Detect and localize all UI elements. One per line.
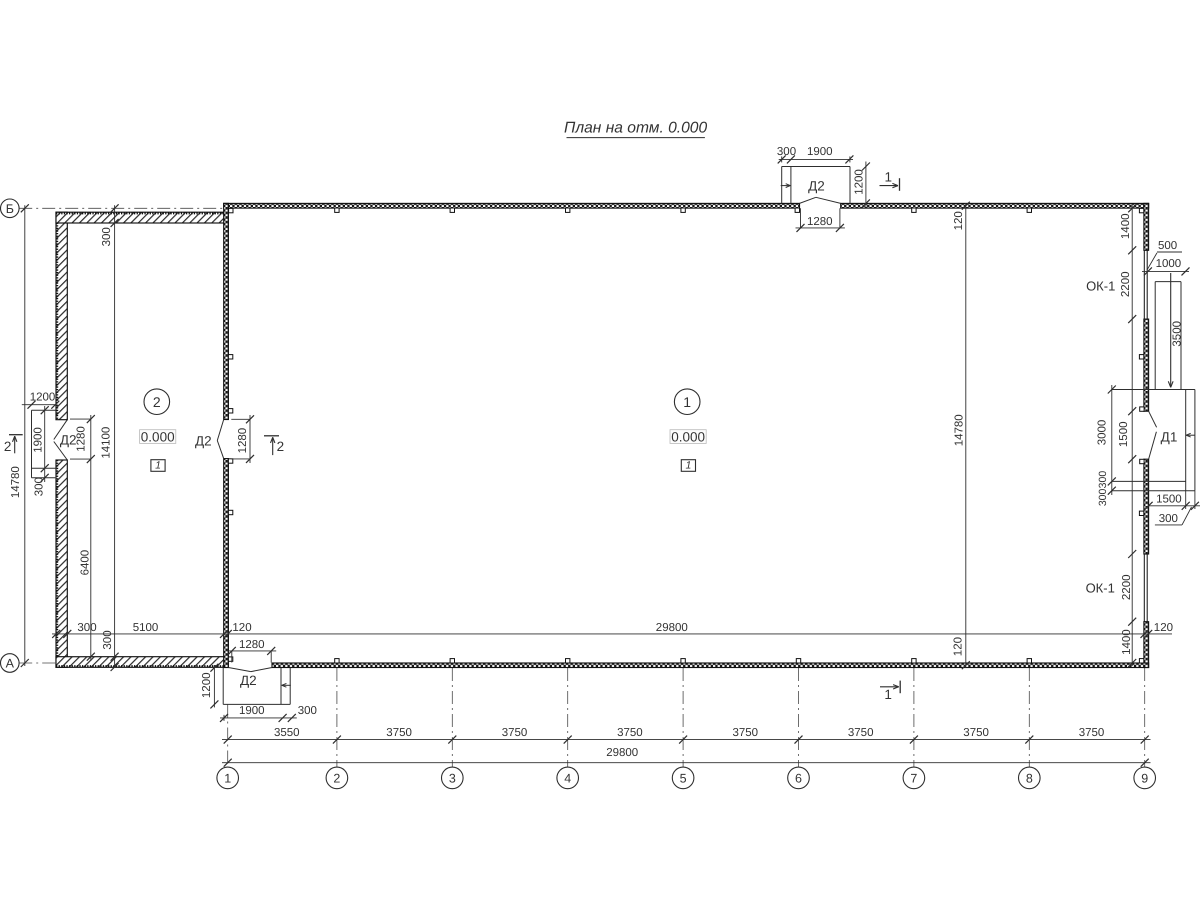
svg-text:1: 1 — [683, 394, 691, 410]
svg-text:2: 2 — [277, 439, 285, 454]
svg-text:1900: 1900 — [239, 705, 265, 717]
svg-text:1280: 1280 — [76, 426, 88, 452]
svg-text:300: 300 — [777, 146, 796, 158]
svg-text:ОК-1: ОК-1 — [1086, 279, 1115, 294]
svg-text:1500: 1500 — [1118, 422, 1130, 448]
svg-text:1200: 1200 — [854, 169, 866, 195]
svg-text:3550: 3550 — [274, 727, 300, 739]
svg-text:9: 9 — [1141, 771, 1148, 785]
svg-text:1280: 1280 — [237, 428, 249, 454]
svg-text:1900: 1900 — [33, 427, 45, 453]
svg-text:6: 6 — [795, 771, 802, 785]
svg-text:Д2: Д2 — [808, 179, 825, 194]
svg-text:5100: 5100 — [133, 622, 159, 634]
svg-text:29800: 29800 — [606, 747, 638, 759]
svg-text:1500: 1500 — [1156, 494, 1182, 506]
svg-text:2200: 2200 — [1121, 575, 1133, 601]
svg-text:300: 300 — [298, 705, 317, 717]
svg-text:3500: 3500 — [1171, 321, 1183, 347]
svg-text:1400: 1400 — [1120, 214, 1132, 240]
svg-text:2: 2 — [153, 394, 161, 410]
svg-text:7: 7 — [910, 771, 917, 785]
svg-text:1: 1 — [155, 460, 161, 472]
svg-text:2200: 2200 — [1120, 272, 1132, 298]
svg-text:1400: 1400 — [1121, 629, 1133, 655]
svg-text:14100: 14100 — [100, 427, 112, 459]
svg-text:2: 2 — [4, 439, 12, 454]
svg-text:3000: 3000 — [1096, 420, 1108, 446]
svg-text:300: 300 — [33, 477, 45, 496]
svg-text:1900: 1900 — [807, 146, 833, 158]
svg-text:1: 1 — [884, 687, 892, 702]
svg-text:5: 5 — [680, 771, 687, 785]
svg-text:500: 500 — [1158, 240, 1177, 252]
svg-text:29800: 29800 — [656, 622, 688, 634]
svg-text:300: 300 — [1159, 513, 1178, 525]
svg-text:Д1: Д1 — [1161, 430, 1178, 445]
svg-text:Д2: Д2 — [60, 433, 77, 448]
svg-text:120: 120 — [1154, 622, 1173, 634]
svg-text:300: 300 — [77, 622, 96, 634]
svg-text:6400: 6400 — [79, 550, 91, 576]
svg-text:1: 1 — [224, 771, 231, 785]
svg-text:1200: 1200 — [30, 392, 56, 404]
svg-text:1: 1 — [885, 170, 893, 185]
svg-text:3750: 3750 — [848, 727, 874, 739]
svg-text:1000: 1000 — [1156, 258, 1182, 270]
svg-text:3750: 3750 — [733, 727, 759, 739]
svg-text:300: 300 — [1097, 471, 1109, 489]
svg-text:3750: 3750 — [502, 727, 528, 739]
svg-text:8: 8 — [1026, 771, 1033, 785]
svg-text:3750: 3750 — [963, 727, 989, 739]
svg-text:300: 300 — [1097, 488, 1109, 506]
svg-text:3: 3 — [449, 771, 456, 785]
svg-text:2: 2 — [333, 771, 340, 785]
svg-text:1: 1 — [685, 460, 691, 472]
svg-text:3750: 3750 — [1079, 727, 1105, 739]
svg-text:14780: 14780 — [953, 414, 965, 446]
svg-text:120: 120 — [953, 211, 965, 230]
svg-text:120: 120 — [232, 622, 251, 634]
svg-text:14780: 14780 — [10, 466, 22, 498]
svg-text:1280: 1280 — [239, 639, 265, 651]
svg-text:4: 4 — [564, 771, 571, 785]
svg-text:300: 300 — [102, 630, 114, 649]
svg-text:А: А — [6, 657, 15, 671]
svg-text:Д2: Д2 — [240, 673, 257, 688]
svg-text:1280: 1280 — [807, 216, 833, 228]
svg-text:0.000: 0.000 — [671, 429, 705, 444]
svg-text:План на отм. 0.000: План на отм. 0.000 — [564, 120, 707, 137]
svg-text:1200: 1200 — [201, 673, 213, 699]
svg-text:Б: Б — [6, 202, 14, 216]
svg-text:3750: 3750 — [386, 727, 412, 739]
svg-text:3750: 3750 — [617, 727, 643, 739]
svg-text:300: 300 — [101, 227, 113, 246]
svg-text:0.000: 0.000 — [141, 429, 175, 444]
svg-text:120: 120 — [952, 637, 964, 656]
svg-text:ОК-1: ОК-1 — [1086, 581, 1115, 596]
svg-text:Д2: Д2 — [195, 434, 212, 449]
